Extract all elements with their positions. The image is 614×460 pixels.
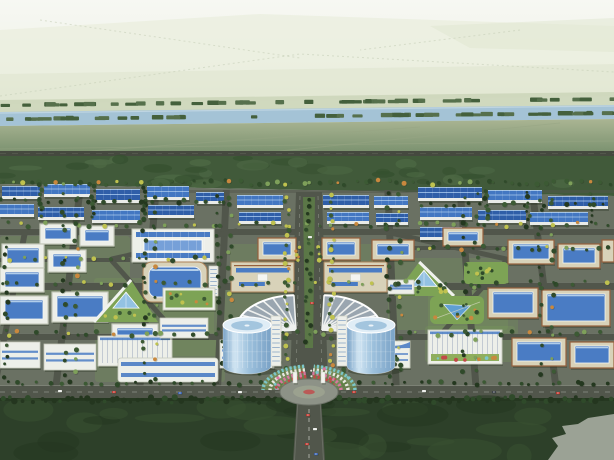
building-factory (327, 212, 370, 226)
building-factory (2, 186, 41, 201)
building-factory (420, 207, 473, 222)
building-factory (530, 212, 589, 227)
building-white-courtyard-office (80, 226, 115, 248)
building-courtyard-office (488, 288, 539, 320)
building-office-slab (44, 344, 97, 372)
aerial-rendering-viewport (0, 0, 614, 460)
building-factory (44, 184, 91, 199)
building-courtyard-office (372, 240, 415, 262)
building-office-slab (160, 318, 209, 340)
building-gateway-hall (324, 262, 388, 294)
industrial-park-aerial-scene (0, 0, 614, 460)
building-courtyard-office (322, 238, 361, 262)
building-factory (0, 204, 35, 219)
building-white-courtyard-office (48, 250, 87, 274)
building-courtyard-office (558, 244, 601, 270)
building-long-office-building (118, 358, 219, 384)
building-courtyard-office (258, 238, 297, 262)
building-factory (374, 196, 409, 210)
building-courtyard-office (508, 240, 555, 266)
highway (0, 151, 614, 156)
building-factory (418, 187, 483, 203)
building-courtyard-office (602, 240, 614, 264)
distant-fields (0, 14, 614, 114)
access-road (293, 398, 325, 460)
building-courtyard-office (512, 338, 567, 368)
building-factory (92, 210, 141, 225)
building-green-roof-building (163, 288, 216, 312)
building-factory (237, 195, 284, 210)
building-factory (548, 196, 609, 211)
building-landscaped-block (464, 262, 508, 284)
building-white-courtyard-office (40, 224, 77, 246)
building-pond-park (430, 296, 484, 324)
building-gateway-hall (231, 262, 295, 294)
building-courtyard-office (570, 342, 614, 370)
building-factory (376, 213, 409, 227)
